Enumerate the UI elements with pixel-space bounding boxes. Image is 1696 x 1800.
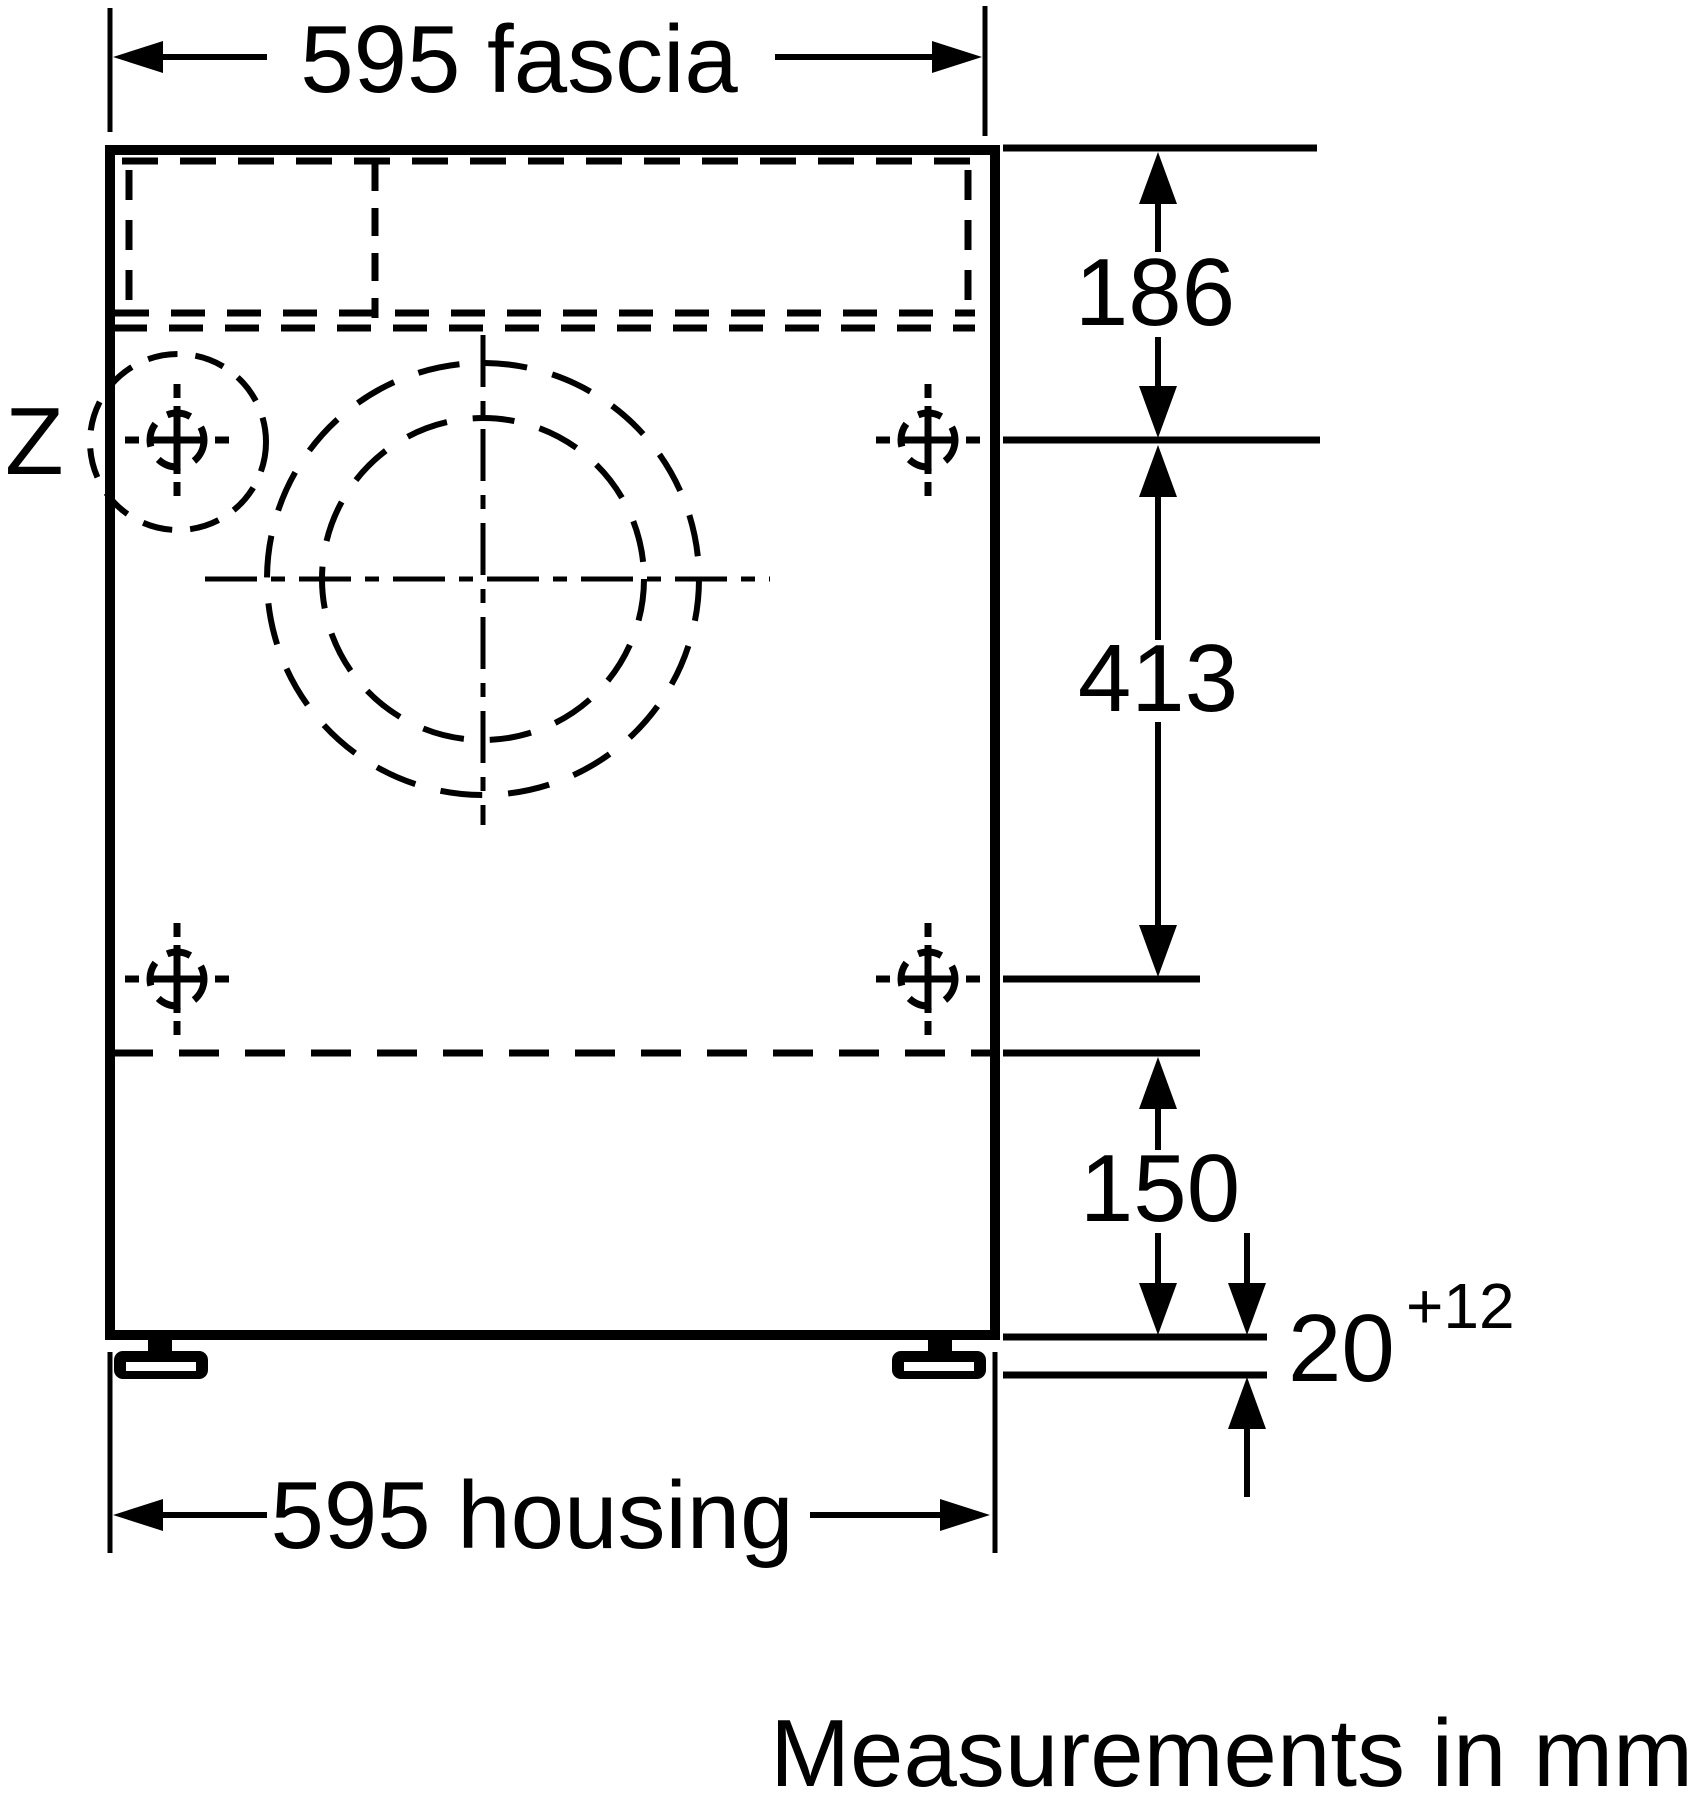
arrowhead-down xyxy=(1228,1283,1266,1335)
housing-arrowhead-right xyxy=(940,1499,990,1531)
dimension-186: 186 xyxy=(1075,152,1235,438)
foot-right xyxy=(892,1335,986,1379)
detail-z-label: Z xyxy=(5,388,64,495)
housing-dimension: 595 housing xyxy=(110,1352,995,1569)
housing-arrowhead-left xyxy=(113,1499,163,1531)
dimension-186-label: 186 xyxy=(1075,239,1235,346)
arrowhead-up xyxy=(1139,152,1177,204)
dimension-413: 413 xyxy=(1078,445,1238,977)
arrowhead-down xyxy=(1139,925,1177,977)
housing-dimension-label: 595 housing xyxy=(270,1462,793,1569)
dimension-413-label: 413 xyxy=(1078,625,1238,732)
units-note: Measurements in mm xyxy=(770,1700,1693,1800)
fascia-dimension: 595 fascia xyxy=(110,6,985,136)
foot-stem xyxy=(928,1335,952,1353)
foot-left xyxy=(114,1335,208,1379)
foot-pad-slot xyxy=(126,1362,196,1371)
arrowhead-up xyxy=(1139,1057,1177,1109)
screw-hole-bottom-right xyxy=(876,923,980,1035)
arrowhead-up xyxy=(1228,1377,1266,1429)
foot-stem xyxy=(148,1335,172,1353)
fascia-arrowhead-right xyxy=(932,41,982,73)
appliance-installation-diagram: 595 fascia xyxy=(0,0,1696,1800)
fascia-arrowhead-left xyxy=(113,41,163,73)
arrowhead-down xyxy=(1139,386,1177,438)
foot-pad-slot xyxy=(904,1362,974,1371)
screw-hole-top-left xyxy=(125,384,229,496)
door-drum xyxy=(205,335,770,825)
fascia-dimension-label: 595 fascia xyxy=(300,6,738,113)
dimension-20-tolerance-label: +12 xyxy=(1406,1270,1515,1342)
arrowhead-down xyxy=(1139,1283,1177,1335)
dimension-150: 150 xyxy=(1080,1057,1240,1335)
screw-hole-bottom-left xyxy=(125,923,229,1035)
appliance-front xyxy=(110,150,995,1379)
dimension-20: 20 +12 xyxy=(1228,1233,1515,1497)
dimension-20-label: 20 xyxy=(1288,1295,1395,1402)
fascia-panel-dashed-box xyxy=(113,161,975,328)
dimension-150-label: 150 xyxy=(1080,1135,1240,1242)
screw-hole-top-right xyxy=(876,384,980,496)
arrowhead-up xyxy=(1139,445,1177,497)
